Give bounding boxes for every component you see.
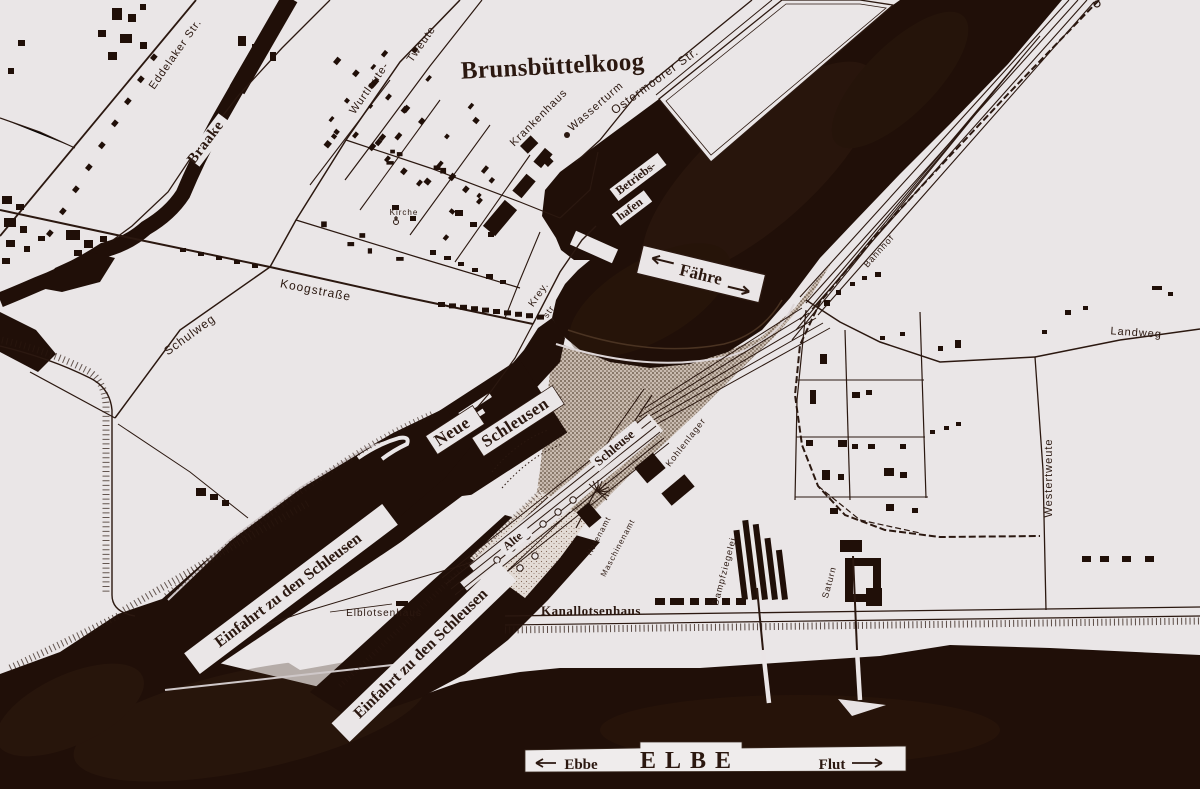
svg-text:Ebbe: Ebbe (564, 757, 598, 773)
svg-text:Kirche: Kirche (390, 208, 419, 217)
svg-text:Kanallotsenhaus: Kanallotsenhaus (541, 603, 641, 618)
svg-text:Westertweute: Westertweute (1043, 438, 1055, 517)
svg-text:Elblotsenhaus: Elblotsenhaus (346, 608, 422, 619)
svg-text:ELBE: ELBE (640, 748, 740, 774)
svg-text:Flut: Flut (819, 757, 846, 773)
